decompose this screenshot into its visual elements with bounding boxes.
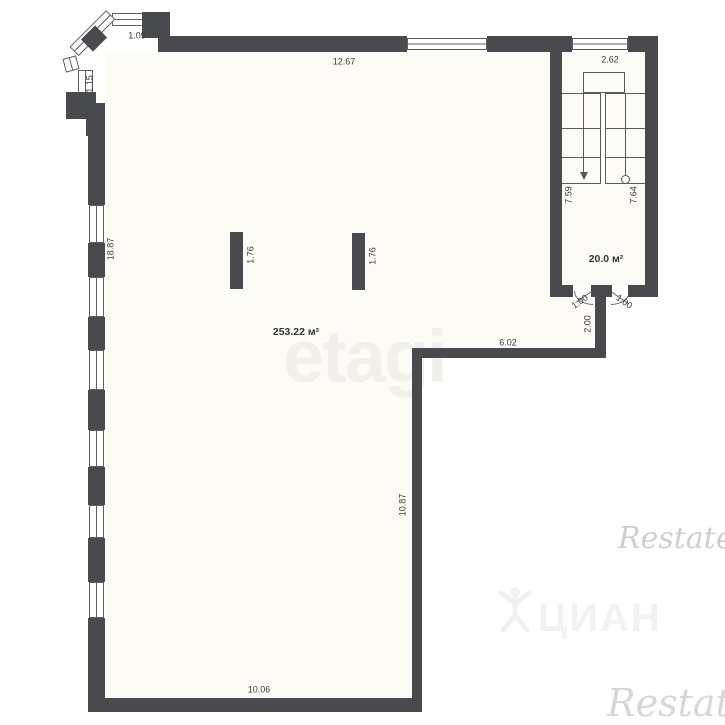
- window-left: [89, 430, 104, 467]
- wall-left: [88, 130, 105, 205]
- dimension-label: 1.76: [247, 246, 256, 264]
- window-corner-vertex: [62, 55, 79, 72]
- dimension-label: 7.64: [630, 186, 639, 204]
- stair-down-arrow-icon: [580, 172, 588, 180]
- column: [352, 233, 365, 290]
- dimension-label: 10.06: [248, 686, 271, 695]
- wall-corridor-horizontal: [412, 348, 606, 358]
- wall-left: [88, 243, 105, 277]
- cian-person-icon: [498, 585, 532, 633]
- window-stair-room: [572, 38, 628, 50]
- interior-main-room-upper-right: [413, 52, 550, 348]
- stair-start-circle-icon: [621, 175, 630, 184]
- dimension-label: 6.02: [499, 339, 517, 348]
- window-left: [89, 350, 104, 390]
- wall-left: [88, 390, 105, 430]
- dimension-label: 18.87: [107, 238, 116, 261]
- wall-left: [88, 317, 105, 350]
- watermark-cian: ЦИАН: [538, 598, 662, 638]
- room-area-label-main: 253.22 м²: [273, 326, 319, 338]
- stair-direction-line: [583, 93, 584, 173]
- window-top: [407, 38, 487, 50]
- window-corner-top: [112, 13, 144, 26]
- wall-stair-room-bottom: [628, 285, 658, 297]
- column: [230, 232, 243, 289]
- window-left: [89, 277, 104, 317]
- dimension-label: 10.87: [399, 494, 408, 517]
- dimension-label: 7.59: [565, 186, 574, 204]
- dimension-label: 12.67: [333, 58, 356, 67]
- watermark-restate-bottom: Restate: [607, 684, 725, 722]
- window-left: [89, 205, 104, 243]
- dimension-label: 1.09: [128, 32, 146, 41]
- wall-stair-room-bottom: [550, 285, 573, 297]
- wall-bottom: [88, 698, 422, 712]
- room-area-label-upper: 20.0 м²: [589, 253, 624, 265]
- dimension-label: 2.00: [584, 315, 593, 333]
- wall-stair-right: [645, 36, 658, 297]
- stair-landing-outline: [583, 72, 625, 93]
- wall-left: [88, 538, 105, 582]
- wall-right-lower: [412, 348, 422, 712]
- wall-corner-block: [142, 12, 170, 38]
- dimension-label: 2.62: [601, 56, 619, 65]
- wall-stair-left: [550, 36, 562, 297]
- dimension-label: 1.76: [369, 247, 378, 265]
- stair-flight-divider: [600, 93, 606, 184]
- wall-stair-room-bottom-stub: [591, 285, 612, 297]
- wall-top: [158, 36, 407, 52]
- wall-left: [88, 467, 105, 505]
- window-left: [89, 582, 104, 618]
- stair-direction-line: [625, 93, 626, 176]
- window-left: [89, 505, 104, 538]
- floor-plan: etagi ЦИАН Restate Restate: [0, 0, 725, 725]
- watermark-restate-mid: Restate: [618, 524, 725, 554]
- dimension-label: 1.15: [86, 75, 95, 93]
